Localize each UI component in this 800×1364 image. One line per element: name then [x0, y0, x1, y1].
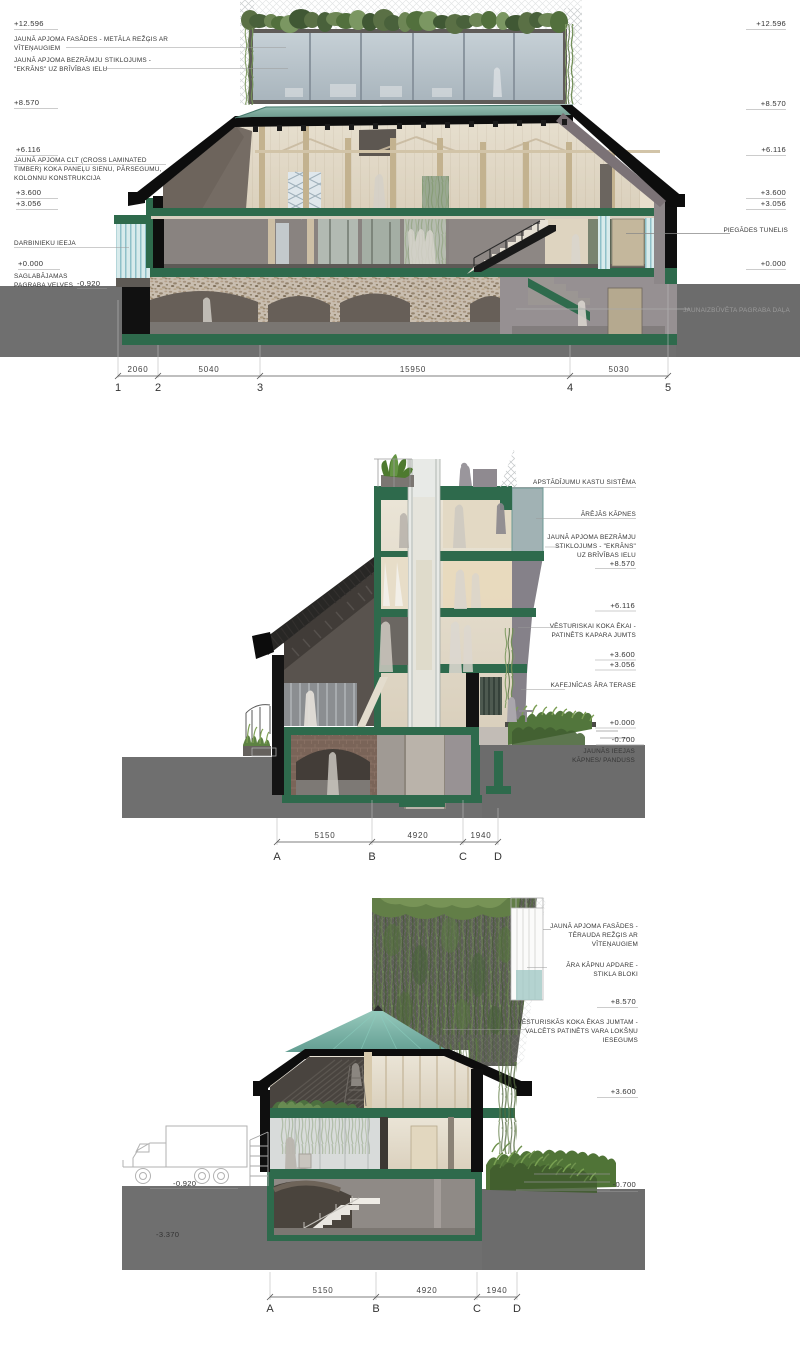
svg-text:B: B [372, 1303, 379, 1315]
svg-text:+8.570: +8.570 [14, 98, 39, 107]
svg-text:VALCĒTS PATINĒTS VARA LOKŠŅU: VALCĒTS PATINĒTS VARA LOKŠŅU [525, 1026, 638, 1035]
svg-text:STIKLA BLOKI: STIKLA BLOKI [593, 971, 638, 978]
svg-text:5: 5 [665, 382, 671, 394]
svg-text:KAFEJNĪCAS ĀRA TERASE: KAFEJNĪCAS ĀRA TERASE [551, 681, 636, 689]
svg-text:D: D [494, 851, 502, 863]
svg-text:+6.116: +6.116 [761, 145, 786, 154]
svg-text:+3.600: +3.600 [610, 650, 635, 659]
svg-text:+3.600: +3.600 [761, 188, 786, 197]
svg-text:5150: 5150 [315, 831, 336, 840]
svg-text:+8.570: +8.570 [610, 559, 635, 568]
svg-text:+6.116: +6.116 [16, 145, 41, 154]
svg-text:5030: 5030 [609, 365, 630, 374]
svg-text:+12.596: +12.596 [756, 19, 786, 28]
svg-text:4: 4 [567, 382, 573, 394]
svg-text:+3.600: +3.600 [16, 188, 41, 197]
svg-text:TIMBER) KOKA PANEĻU SIENU, PĀR: TIMBER) KOKA PANEĻU SIENU, PĀRSEGUMU, [14, 165, 162, 173]
svg-text:PATINĒTS KAPARA JUMTS: PATINĒTS KAPARA JUMTS [552, 631, 636, 639]
svg-text:+0.000: +0.000 [18, 259, 43, 268]
svg-text:PIEGĀDES TUNELIS: PIEGĀDES TUNELIS [723, 226, 788, 234]
svg-text:JAUNĀ APJOMA FASĀDES -: JAUNĀ APJOMA FASĀDES - [550, 922, 638, 930]
svg-text:5150: 5150 [313, 1286, 334, 1295]
svg-text:JAUNĀ APJOMA BEZRĀMJU STIKLOJU: JAUNĀ APJOMA BEZRĀMJU STIKLOJUMS - [14, 56, 151, 64]
svg-text:1940: 1940 [487, 1286, 508, 1295]
svg-text:ĀRA KĀPNU APDARE -: ĀRA KĀPNU APDARE - [566, 961, 638, 969]
svg-text:D: D [513, 1303, 521, 1315]
svg-text:+8.570: +8.570 [611, 997, 636, 1006]
svg-text:+3.056: +3.056 [16, 199, 41, 208]
svg-text:VĪTEŅAUGIEM: VĪTEŅAUGIEM [14, 44, 60, 52]
svg-text:4920: 4920 [408, 831, 429, 840]
svg-text:KĀPNES/ PANDUSS: KĀPNES/ PANDUSS [572, 756, 635, 764]
svg-text:1: 1 [115, 382, 121, 394]
svg-text:SAGLABĀJAMAS: SAGLABĀJAMAS [14, 272, 68, 280]
svg-text:+6.116: +6.116 [610, 601, 635, 610]
svg-text:PAGRABA VELVES: PAGRABA VELVES [14, 282, 73, 289]
svg-text:-0.700: -0.700 [613, 1180, 636, 1189]
svg-text:-0.920: -0.920 [173, 1179, 196, 1188]
svg-text:A: A [273, 851, 281, 863]
svg-text:3: 3 [257, 382, 263, 394]
svg-text:C: C [459, 851, 467, 863]
svg-text:JAUNAIZBŪVĒTA PAGRABA DAĻA: JAUNAIZBŪVĒTA PAGRABA DAĻA [683, 306, 790, 314]
svg-text:JAUNĀ APJOMA CLT (CROSS LAMINA: JAUNĀ APJOMA CLT (CROSS LAMINATED [14, 156, 147, 164]
svg-text:JAUNĀS IEEJAS: JAUNĀS IEEJAS [583, 747, 635, 755]
svg-text:-3.370: -3.370 [156, 1230, 179, 1239]
svg-text:STIKLOJUMS - "EKRĀNS": STIKLOJUMS - "EKRĀNS" [555, 542, 636, 550]
svg-text:2060: 2060 [128, 365, 149, 374]
svg-text:C: C [473, 1303, 481, 1315]
svg-text:A: A [266, 1303, 274, 1315]
svg-text:+3.600: +3.600 [611, 1087, 636, 1096]
svg-text:5040: 5040 [199, 365, 220, 374]
svg-text:+3.056: +3.056 [761, 199, 786, 208]
svg-text:UZ BRĪVĪBAS IELU: UZ BRĪVĪBAS IELU [577, 551, 636, 559]
svg-text:JAUNĀ APJOMA FASĀDES - METĀLA: JAUNĀ APJOMA FASĀDES - METĀLA REŽĢIS AR [14, 34, 168, 43]
svg-text:IESEGUMS: IESEGUMS [603, 1037, 638, 1044]
svg-text:15950: 15950 [400, 365, 426, 374]
svg-text:+12.596: +12.596 [14, 19, 44, 28]
svg-text:VĒSTURISKĀS KOKA ĒKAS JUMTAM -: VĒSTURISKĀS KOKA ĒKAS JUMTAM - [517, 1018, 638, 1026]
svg-text:1940: 1940 [471, 831, 492, 840]
svg-text:+3.056: +3.056 [610, 660, 635, 669]
svg-text:-0.700: -0.700 [612, 735, 635, 744]
svg-text:4920: 4920 [417, 1286, 438, 1295]
svg-text:VĪTEŅAUGIEM: VĪTEŅAUGIEM [592, 940, 638, 948]
svg-text:2: 2 [155, 382, 161, 394]
svg-text:+0.000: +0.000 [761, 259, 786, 268]
svg-text:DARBINIEKU IEEJA: DARBINIEKU IEEJA [14, 240, 76, 247]
svg-text:+0.000: +0.000 [610, 718, 635, 727]
svg-text:JAUNĀ APJOMA BEZRĀMJU: JAUNĀ APJOMA BEZRĀMJU [547, 533, 636, 541]
svg-text:B: B [368, 851, 375, 863]
svg-text:ĀRĒJĀS KĀPNES: ĀRĒJĀS KĀPNES [581, 510, 636, 518]
svg-text:TĒRAUDA REŽĢIS AR: TĒRAUDA REŽĢIS AR [569, 930, 639, 939]
svg-text:APSTĀDĪJUMU KASTU SISTĒMA: APSTĀDĪJUMU KASTU SISTĒMA [533, 478, 637, 486]
svg-text:-0.920: -0.920 [77, 279, 100, 288]
svg-text:+8.570: +8.570 [761, 99, 786, 108]
svg-text:"EKRĀNS" UZ BRĪVĪBAS IELU: "EKRĀNS" UZ BRĪVĪBAS IELU [14, 65, 108, 73]
svg-text:VĒSTURISKAI KOKA ĒKAI -: VĒSTURISKAI KOKA ĒKAI - [550, 622, 636, 630]
svg-text:KOLONNU KONSTRUKCIJA: KOLONNU KONSTRUKCIJA [14, 175, 101, 182]
